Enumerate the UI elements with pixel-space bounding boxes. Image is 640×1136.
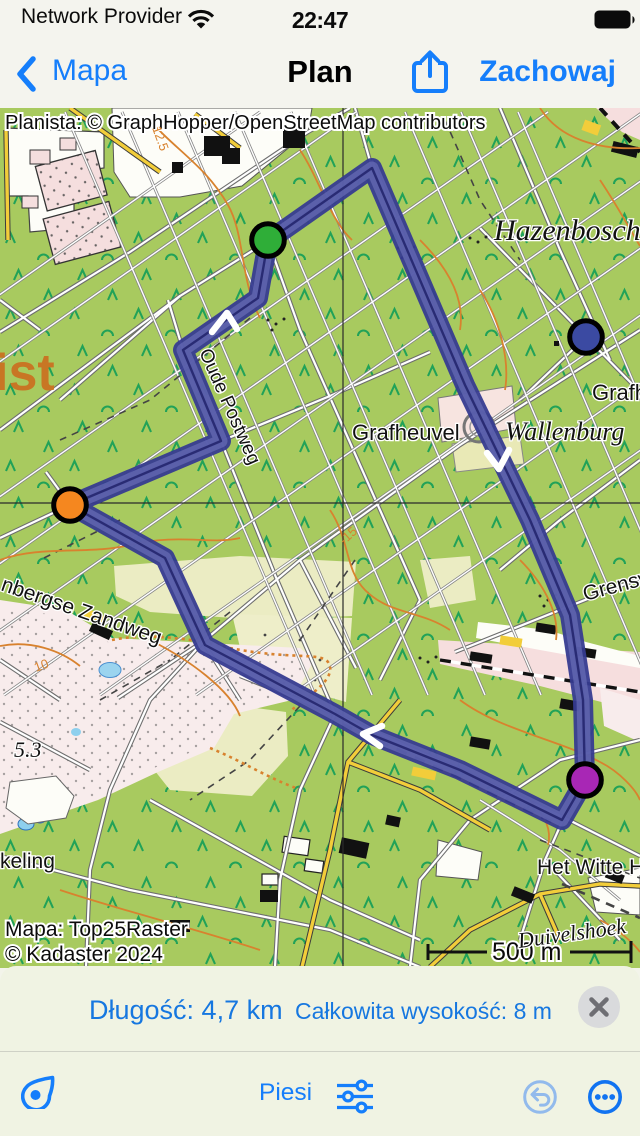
svg-text:Wallenburg: Wallenburg (505, 417, 624, 446)
svg-text:© Kadaster 2024: © Kadaster 2024 (5, 943, 163, 966)
svg-text:Grafheuvel: Grafheuvel (352, 420, 460, 445)
svg-text:Het Witte H: Het Witte H (537, 856, 640, 879)
svg-text:Planista: © GraphHopper/OpenSt: Planista: © GraphHopper/OpenStreetMap co… (5, 112, 486, 134)
svg-text:Grafh: Grafh (592, 380, 640, 405)
svg-text:5.3: 5.3 (14, 737, 42, 762)
svg-text:Hazenbosch: Hazenbosch (493, 214, 640, 247)
svg-text:Mapa: Top25Raster: Mapa: Top25Raster (5, 918, 188, 941)
svg-text:ist: ist (0, 344, 55, 402)
svg-text:keling: keling (0, 850, 55, 873)
